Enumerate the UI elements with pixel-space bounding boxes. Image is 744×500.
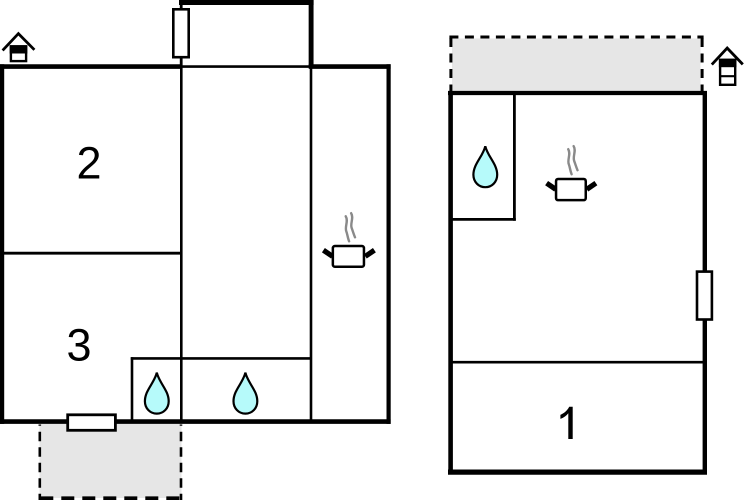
svg-text:2: 2 [76, 137, 101, 188]
svg-text:3: 3 [66, 319, 91, 370]
